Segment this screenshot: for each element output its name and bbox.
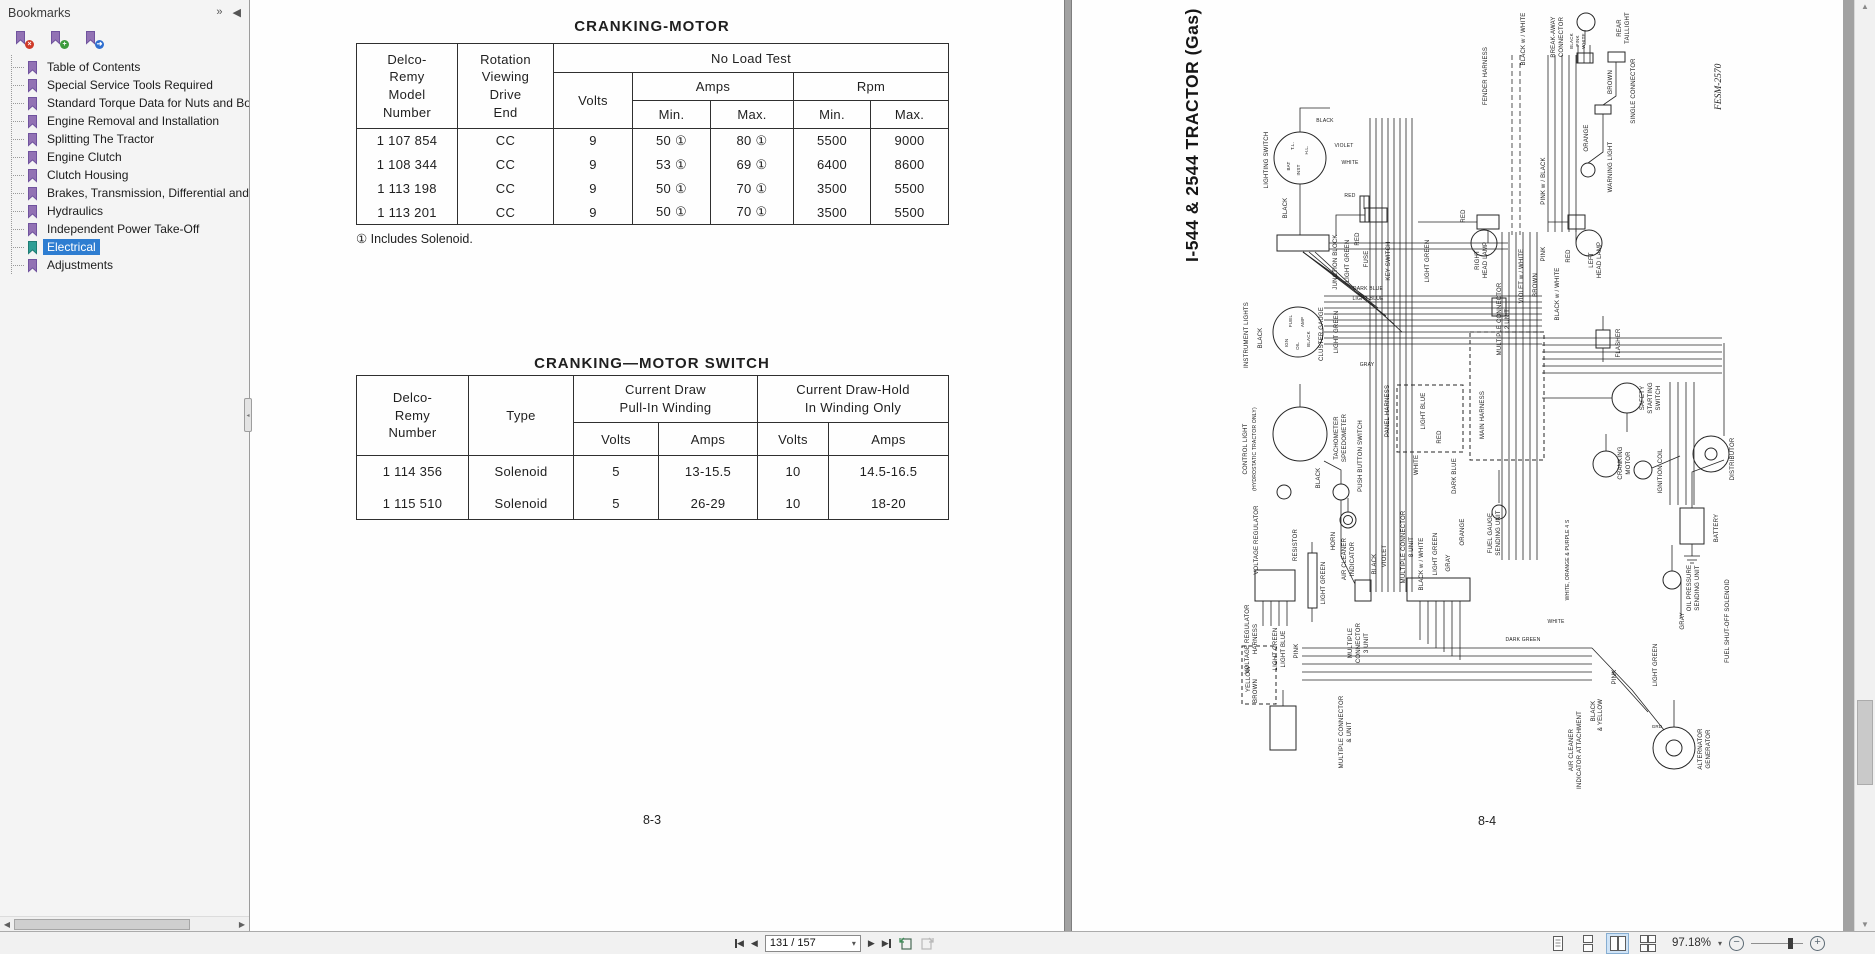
zoom-out-button[interactable]: − bbox=[1729, 936, 1744, 951]
svg-text:GRD: GRD bbox=[1652, 724, 1663, 729]
svg-text:H.L.: H.L. bbox=[1304, 145, 1309, 154]
svg-text:INDICATOR ATTACHMENT: INDICATOR ATTACHMENT bbox=[1577, 711, 1583, 789]
page-number-left: 8-3 bbox=[356, 813, 948, 827]
svg-text:BLACK w / WHITE: BLACK w / WHITE bbox=[1419, 537, 1425, 590]
column-group-header: Amps bbox=[633, 73, 794, 101]
document-vertical-scrollbar[interactable]: ▲ ▼ bbox=[1854, 0, 1875, 931]
last-page-button[interactable]: ▶ bbox=[882, 938, 891, 949]
svg-text:& UNIT: & UNIT bbox=[1347, 721, 1353, 742]
page-gap bbox=[1064, 0, 1072, 931]
bookmark-item-label: Electrical bbox=[43, 239, 100, 255]
previous-page-button[interactable]: ◀ bbox=[751, 938, 758, 949]
svg-text:HEAD LAMP: HEAD LAMP bbox=[1597, 242, 1603, 278]
svg-text:LIGHT GREEN: LIGHT GREEN bbox=[1334, 311, 1340, 354]
table-row: 1 108 344CC953 ①69 ①64008600 bbox=[357, 153, 949, 177]
svg-text:LIGHT GREEN: LIGHT GREEN bbox=[1345, 240, 1351, 283]
zoom-level: 97.18% bbox=[1672, 937, 1711, 949]
bookmark-icon bbox=[26, 240, 39, 255]
zoom-slider-track bbox=[1751, 943, 1803, 945]
svg-text:DARK BLUE: DARK BLUE bbox=[1452, 458, 1458, 494]
page-field-value: 131 / 157 bbox=[770, 937, 816, 949]
svg-text:CONNECTOR: CONNECTOR bbox=[1356, 622, 1362, 663]
svg-text:PINK: PINK bbox=[1575, 35, 1580, 46]
bookmark-item[interactable]: Brakes, Transmission, Differential and I bbox=[0, 184, 249, 202]
cranking-motor-switch-table: Delco- Remy Number Type Current Draw Pul… bbox=[356, 375, 949, 520]
two-page-view-button[interactable] bbox=[1606, 933, 1629, 954]
table-row: 1 113 201CC950 ①70 ①35005500 bbox=[357, 201, 949, 225]
scrolling-page-view-button[interactable] bbox=[1576, 933, 1599, 954]
svg-text:INSTRUMENT LIGHTS: INSTRUMENT LIGHTS bbox=[1244, 302, 1250, 368]
svg-text:LIGHT BLUE: LIGHT BLUE bbox=[1421, 393, 1427, 430]
bookmark-item-label: Independent Power Take-Off bbox=[43, 221, 203, 237]
single-page-view-button[interactable] bbox=[1546, 933, 1569, 954]
zoom-menu-caret-icon[interactable]: ▾ bbox=[1718, 939, 1722, 948]
svg-text:SENDING UNIT: SENDING UNIT bbox=[1496, 510, 1502, 556]
bookmarks-tree: Table of Contents Special Service Tools … bbox=[0, 55, 249, 274]
zoom-slider-thumb[interactable] bbox=[1788, 938, 1793, 949]
svg-text:VOLTAGE REGULATOR: VOLTAGE REGULATOR bbox=[1245, 604, 1251, 674]
table-footnote: ① Includes Solenoid. bbox=[356, 231, 473, 246]
bookmark-item-label: Special Service Tools Required bbox=[43, 77, 217, 93]
svg-text:T.L.: T.L. bbox=[1290, 142, 1295, 150]
svg-text:TAILLIGHT: TAILLIGHT bbox=[1625, 12, 1631, 44]
svg-text:BLACK w / WHITE: BLACK w / WHITE bbox=[1555, 267, 1561, 320]
svg-text:FUSE: FUSE bbox=[1364, 251, 1370, 268]
column-header: Amps bbox=[659, 423, 758, 456]
previous-view-button[interactable] bbox=[898, 936, 913, 950]
svg-text:CLUSTER GAUGE: CLUSTER GAUGE bbox=[1319, 307, 1325, 361]
svg-text:BLACK: BLACK bbox=[1258, 328, 1264, 349]
bookmarks-toolbar: × + ➜ bbox=[0, 25, 249, 55]
svg-text:RESISTOR: RESISTOR bbox=[1293, 528, 1299, 561]
svg-text:BROWN: BROWN bbox=[1253, 679, 1259, 703]
svg-text:SINGLE CONNECTOR: SINGLE CONNECTOR bbox=[1631, 58, 1637, 124]
bookmark-item[interactable]: Special Service Tools Required bbox=[0, 76, 249, 94]
svg-text:BLACK: BLACK bbox=[1372, 554, 1378, 575]
svg-text:ORANGE: ORANGE bbox=[1460, 518, 1466, 545]
table-row: 1 114 356Solenoid513-15.51014.5-16.5 bbox=[357, 456, 949, 488]
svg-text:VIOLET: VIOLET bbox=[1335, 143, 1354, 149]
column-group-header: Current Draw-Hold In Winding Only bbox=[758, 376, 949, 423]
column-group-header: No Load Test bbox=[554, 44, 949, 73]
page-number-right: 8-4 bbox=[1427, 814, 1547, 828]
svg-text:WARNING LIGHT: WARNING LIGHT bbox=[1608, 142, 1614, 193]
svg-text:OIL: OIL bbox=[1295, 342, 1300, 350]
column-header: Delco- Remy Model Number bbox=[357, 44, 458, 129]
svg-text:LIGHT BLUE: LIGHT BLUE bbox=[1281, 631, 1287, 668]
panel-options-icon[interactable]: » bbox=[216, 6, 222, 19]
svg-text:AMP: AMP bbox=[1300, 317, 1305, 327]
bookmark-item[interactable]: Standard Torque Data for Nuts and Bo bbox=[0, 94, 249, 112]
svg-text:PINK: PINK bbox=[1541, 247, 1547, 262]
bookmark-item-label: Engine Clutch bbox=[43, 149, 126, 165]
bookmark-icon bbox=[26, 114, 39, 129]
svg-text:GENERATOR: GENERATOR bbox=[1706, 729, 1712, 769]
scroll-up-icon[interactable]: ▲ bbox=[1855, 2, 1875, 11]
table-row: 1 113 198CC950 ①70 ①35005500 bbox=[357, 177, 949, 201]
svg-text:BLACK: BLACK bbox=[1591, 701, 1597, 722]
column-header: Rotation Viewing Drive End bbox=[458, 44, 554, 129]
diagram-title: I-544 & 2544 TRACTOR (Gas) bbox=[1182, 8, 1203, 262]
bookmark-tool-badge: + bbox=[60, 40, 69, 49]
svg-text:BLACK: BLACK bbox=[1283, 198, 1289, 219]
svg-text:DARK GREEN: DARK GREEN bbox=[1505, 637, 1540, 643]
bookmark-item-label: Standard Torque Data for Nuts and Bo bbox=[43, 95, 249, 111]
svg-text:SPEEDOMETER: SPEEDOMETER bbox=[1342, 413, 1348, 462]
svg-text:AIR CLEANER: AIR CLEANER bbox=[1569, 728, 1575, 771]
svg-text:ALTERNATOR: ALTERNATOR bbox=[1698, 728, 1704, 770]
bookmarks-panel-header: Bookmarks » ◀ bbox=[0, 0, 249, 25]
svg-text:RED: RED bbox=[1355, 232, 1361, 246]
bookmark-icon bbox=[26, 132, 39, 147]
document-page-left: CRANKING-MOTOR Delco- Remy Model Number … bbox=[250, 0, 1064, 931]
svg-text:OIL PRESSURE: OIL PRESSURE bbox=[1687, 565, 1693, 612]
cranking-motor-table: Delco- Remy Model Number Rotation Viewin… bbox=[356, 43, 949, 225]
svg-text:BLACK w / WHITE: BLACK w / WHITE bbox=[1521, 12, 1527, 65]
svg-text:LEFT: LEFT bbox=[1589, 252, 1595, 268]
svg-text:KEY SWITCH: KEY SWITCH bbox=[1386, 241, 1392, 280]
svg-text:PINK w / BLACK: PINK w / BLACK bbox=[1541, 157, 1547, 204]
bookmark-icon bbox=[26, 186, 39, 201]
bookmark-icon bbox=[26, 204, 39, 219]
svg-text:HARNESS: HARNESS bbox=[1253, 624, 1259, 654]
svg-text:LIGHT GREEN: LIGHT GREEN bbox=[1425, 240, 1431, 283]
panel-collapse-icon[interactable]: ◀ bbox=[233, 6, 241, 19]
svg-text:BATTERY: BATTERY bbox=[1714, 514, 1720, 543]
column-header: Max. bbox=[711, 101, 794, 129]
next-view-button[interactable] bbox=[920, 936, 935, 950]
bookmark-item[interactable]: Engine Removal and Installation bbox=[0, 112, 249, 130]
svg-text:IGNITION COIL: IGNITION COIL bbox=[1658, 448, 1664, 493]
scrollbar-thumb[interactable] bbox=[14, 919, 190, 930]
column-header: Min. bbox=[794, 101, 871, 129]
svg-text:DISTRIBUTOR: DISTRIBUTOR bbox=[1730, 437, 1736, 480]
table-row: 1 115 510Solenoid526-291018-20 bbox=[357, 488, 949, 520]
bookmark-item-label: Brakes, Transmission, Differential and I bbox=[43, 185, 249, 201]
scroll-right-icon[interactable]: ▶ bbox=[235, 920, 249, 929]
svg-text:RED: RED bbox=[1566, 249, 1572, 263]
bookmarks-panel: Bookmarks » ◀ × + ➜ Table of Contents Sp… bbox=[0, 0, 250, 931]
svg-text:BROWN: BROWN bbox=[1533, 273, 1539, 297]
svg-text:& YELLOW: & YELLOW bbox=[1598, 699, 1604, 731]
bookmark-icon bbox=[26, 78, 39, 93]
column-header: Max. bbox=[871, 101, 949, 129]
bookmark-tool-badge: × bbox=[25, 40, 34, 49]
bookmark-item-label: Splitting The Tractor bbox=[43, 131, 158, 147]
svg-text:MAIN HARNESS: MAIN HARNESS bbox=[1480, 391, 1486, 439]
svg-text:FLASHER: FLASHER bbox=[1616, 328, 1622, 358]
bookmark-item[interactable]: Adjustments bbox=[0, 256, 249, 274]
page-navigation: ◀ ◀ 131 / 157 ▾ ▶ ▶ bbox=[735, 932, 935, 954]
table-row: 1 107 854CC950 ①80 ①55009000 bbox=[357, 129, 949, 153]
view-zoom-controls: 97.18% ▾ − + bbox=[1546, 932, 1825, 954]
svg-text:LIGHT GREEN: LIGHT GREEN bbox=[1433, 533, 1439, 576]
zoom-in-button[interactable]: + bbox=[1810, 936, 1825, 951]
bookmark-item[interactable]: Independent Power Take-Off bbox=[0, 220, 249, 238]
cranking-motor-title: CRANKING-MOTOR bbox=[356, 18, 948, 35]
svg-text:GRAY: GRAY bbox=[1446, 554, 1452, 571]
bookmark-item-label: Engine Removal and Installation bbox=[43, 113, 223, 129]
svg-text:AIR CLEANER: AIR CLEANER bbox=[1342, 537, 1348, 580]
column-header: Volts bbox=[574, 423, 659, 456]
bookmark-tool-icon[interactable]: + bbox=[49, 30, 64, 47]
svg-text:VOLTAGE REGULATOR: VOLTAGE REGULATOR bbox=[1254, 505, 1260, 575]
bookmark-tool-badge: ➜ bbox=[95, 40, 104, 49]
svg-text:VIOLET w / WHITE: VIOLET w / WHITE bbox=[1519, 249, 1525, 304]
svg-text:BREAK-AWAY: BREAK-AWAY bbox=[1551, 16, 1557, 57]
svg-text:SAFETY: SAFETY bbox=[1640, 386, 1646, 411]
svg-text:JUNCTION BLOCK: JUNCTION BLOCK bbox=[1333, 234, 1339, 289]
svg-text:VIOLET: VIOLET bbox=[1382, 545, 1388, 568]
zoom-slider[interactable] bbox=[1751, 936, 1803, 951]
svg-text:BLACK: BLACK bbox=[1316, 468, 1322, 489]
bookmark-item[interactable]: Clutch Housing bbox=[0, 166, 249, 184]
svg-text:WHITE: WHITE bbox=[1547, 619, 1565, 625]
bookmark-icon bbox=[26, 258, 39, 273]
bookmark-icon bbox=[26, 168, 39, 183]
next-page-button[interactable]: ▶ bbox=[868, 938, 875, 949]
svg-text:WHITE: WHITE bbox=[1581, 33, 1586, 49]
svg-text:FUEL SHUT-OFF SOLENOID: FUEL SHUT-OFF SOLENOID bbox=[1725, 579, 1731, 663]
svg-text:MULTIPLE CONNECTOR: MULTIPLE CONNECTOR bbox=[1339, 695, 1345, 768]
svg-text:CRANKING: CRANKING bbox=[1618, 446, 1624, 479]
svg-text:PINK: PINK bbox=[1294, 644, 1300, 659]
bookmark-item[interactable]: Splitting The Tractor bbox=[0, 130, 249, 148]
svg-text:PUSH BUTTON SWITCH: PUSH BUTTON SWITCH bbox=[1358, 420, 1364, 492]
svg-text:3 UNIT: 3 UNIT bbox=[1364, 633, 1370, 653]
svg-text:GRAY: GRAY bbox=[1360, 362, 1375, 368]
bookmark-item[interactable]: Table of Contents bbox=[0, 58, 249, 76]
svg-text:WHITE, ORANGE & PURPLE 4 S: WHITE, ORANGE & PURPLE 4 S bbox=[1565, 519, 1571, 600]
svg-text:LIGHT BLUE: LIGHT BLUE bbox=[1352, 296, 1384, 302]
svg-text:SWITCH: SWITCH bbox=[1656, 386, 1662, 411]
svg-text:BLACK: BLACK bbox=[1306, 331, 1311, 347]
svg-text:BROWN: BROWN bbox=[1608, 70, 1614, 94]
bookmark-icon bbox=[26, 96, 39, 111]
svg-text:LIGHT GREEN: LIGHT GREEN bbox=[1653, 644, 1659, 687]
page-number-input[interactable]: 131 / 157 ▾ bbox=[765, 935, 861, 952]
bookmark-tool-icon[interactable]: ➜ bbox=[84, 30, 99, 47]
svg-text:PANEL HARNESS: PANEL HARNESS bbox=[1385, 385, 1391, 437]
bookmark-item[interactable]: Electrical bbox=[0, 238, 249, 256]
svg-text:STARTING: STARTING bbox=[1648, 382, 1654, 414]
document-page-right: LIGHTING SWITCHT.L.H.L.BATINSTBLACKBLACK… bbox=[1072, 0, 1843, 931]
bookmark-icon bbox=[26, 60, 39, 75]
bookmark-item[interactable]: Engine Clutch bbox=[0, 148, 249, 166]
svg-text:8 UNIT: 8 UNIT bbox=[1409, 537, 1415, 557]
column-header: Amps bbox=[829, 423, 949, 456]
svg-text:LIGHT GREEN: LIGHT GREEN bbox=[1321, 562, 1327, 605]
bookmark-item-label: Clutch Housing bbox=[43, 167, 132, 183]
status-bar: ◀ ◀ 131 / 157 ▾ ▶ ▶ 97.18% ▾ − bbox=[0, 931, 1875, 954]
column-group-header: Current Draw Pull-In Winding bbox=[574, 376, 758, 423]
svg-text:SENDING UNIT: SENDING UNIT bbox=[1695, 565, 1701, 611]
svg-text:LIGHT GREEN: LIGHT GREEN bbox=[1273, 628, 1279, 671]
svg-text:(HYDROSTATIC TRACTOR ONLY): (HYDROSTATIC TRACTOR ONLY) bbox=[1252, 407, 1258, 491]
column-header: Volts bbox=[758, 423, 829, 456]
svg-text:YELLOW: YELLOW bbox=[1246, 666, 1252, 692]
bookmark-item-label: Table of Contents bbox=[43, 59, 144, 75]
column-header: Type bbox=[469, 376, 574, 456]
bookmark-item-label: Hydraulics bbox=[43, 203, 107, 219]
svg-text:CONTROL LIGHT: CONTROL LIGHT bbox=[1243, 423, 1249, 474]
svg-text:TACHOMETER: TACHOMETER bbox=[1334, 416, 1340, 460]
svg-text:FUEL GAUGE: FUEL GAUGE bbox=[1488, 513, 1494, 553]
document-pane-background bbox=[1843, 0, 1854, 931]
svg-text:REAR: REAR bbox=[1617, 19, 1623, 37]
scroll-left-icon[interactable]: ◀ bbox=[0, 920, 14, 929]
column-group-header: Rpm bbox=[794, 73, 949, 101]
first-page-button[interactable]: ◀ bbox=[735, 938, 744, 949]
svg-text:INDICATOR: INDICATOR bbox=[1350, 541, 1356, 576]
column-header: Delco- Remy Number bbox=[357, 376, 469, 456]
column-header: Volts bbox=[554, 73, 633, 129]
svg-text:RED: RED bbox=[1437, 430, 1443, 444]
svg-text:DARK BLUE: DARK BLUE bbox=[1353, 286, 1384, 292]
svg-text:2 UNIT: 2 UNIT bbox=[1505, 309, 1511, 329]
figure-code: FESM-2570 bbox=[1714, 64, 1724, 110]
cranking-motor-switch-title: CRANKING—MOTOR SWITCH bbox=[356, 355, 948, 372]
svg-text:RED: RED bbox=[1344, 193, 1355, 199]
chevron-down-icon[interactable]: ▾ bbox=[852, 939, 856, 948]
svg-text:FUEL: FUEL bbox=[1288, 315, 1293, 328]
svg-text:MULTIPLE CONNECTOR: MULTIPLE CONNECTOR bbox=[1497, 282, 1503, 355]
svg-text:HEAD LAMP: HEAD LAMP bbox=[1483, 242, 1489, 278]
bookmark-item-label: Adjustments bbox=[43, 257, 117, 273]
bookmarks-horizontal-scrollbar[interactable]: ◀ ▶ bbox=[0, 916, 249, 931]
svg-text:RED: RED bbox=[1461, 209, 1467, 223]
scrollbar-thumb[interactable] bbox=[1857, 700, 1873, 785]
svg-text:BLACK: BLACK bbox=[1569, 33, 1574, 49]
svg-text:PINK: PINK bbox=[1612, 670, 1618, 685]
panel-splitter[interactable]: ◂ bbox=[244, 398, 252, 432]
svg-text:HORN: HORN bbox=[1331, 532, 1337, 550]
bookmark-icon bbox=[26, 150, 39, 165]
svg-text:INST: INST bbox=[1296, 164, 1301, 175]
scroll-down-icon[interactable]: ▼ bbox=[1855, 920, 1875, 929]
svg-text:BAT: BAT bbox=[1286, 161, 1291, 170]
panel-title: Bookmarks bbox=[8, 6, 71, 20]
two-page-scrolling-view-button[interactable] bbox=[1636, 933, 1659, 954]
svg-text:FENDER HARNESS: FENDER HARNESS bbox=[1483, 47, 1489, 105]
svg-text:LIGHTING SWITCH: LIGHTING SWITCH bbox=[1264, 132, 1270, 189]
svg-text:BLACK: BLACK bbox=[1316, 118, 1334, 124]
svg-text:MULTIPLE: MULTIPLE bbox=[1348, 628, 1354, 659]
svg-text:IGN: IGN bbox=[1284, 339, 1289, 348]
svg-text:MULTIPLE CONNECTOR: MULTIPLE CONNECTOR bbox=[1401, 510, 1407, 583]
bookmark-item[interactable]: Hydraulics bbox=[0, 202, 249, 220]
svg-text:MOTOR: MOTOR bbox=[1626, 451, 1632, 475]
bookmark-tool-icon[interactable]: × bbox=[14, 30, 29, 47]
column-header: Min. bbox=[633, 101, 711, 129]
svg-text:WHITE: WHITE bbox=[1414, 455, 1420, 475]
svg-text:ORANGE: ORANGE bbox=[1584, 124, 1590, 151]
svg-text:GRAY: GRAY bbox=[1680, 612, 1686, 629]
svg-text:CONNECTOR: CONNECTOR bbox=[1559, 16, 1565, 57]
svg-text:RIGHT: RIGHT bbox=[1475, 250, 1481, 270]
bookmark-icon bbox=[26, 222, 39, 237]
svg-text:WHITE: WHITE bbox=[1341, 160, 1359, 166]
